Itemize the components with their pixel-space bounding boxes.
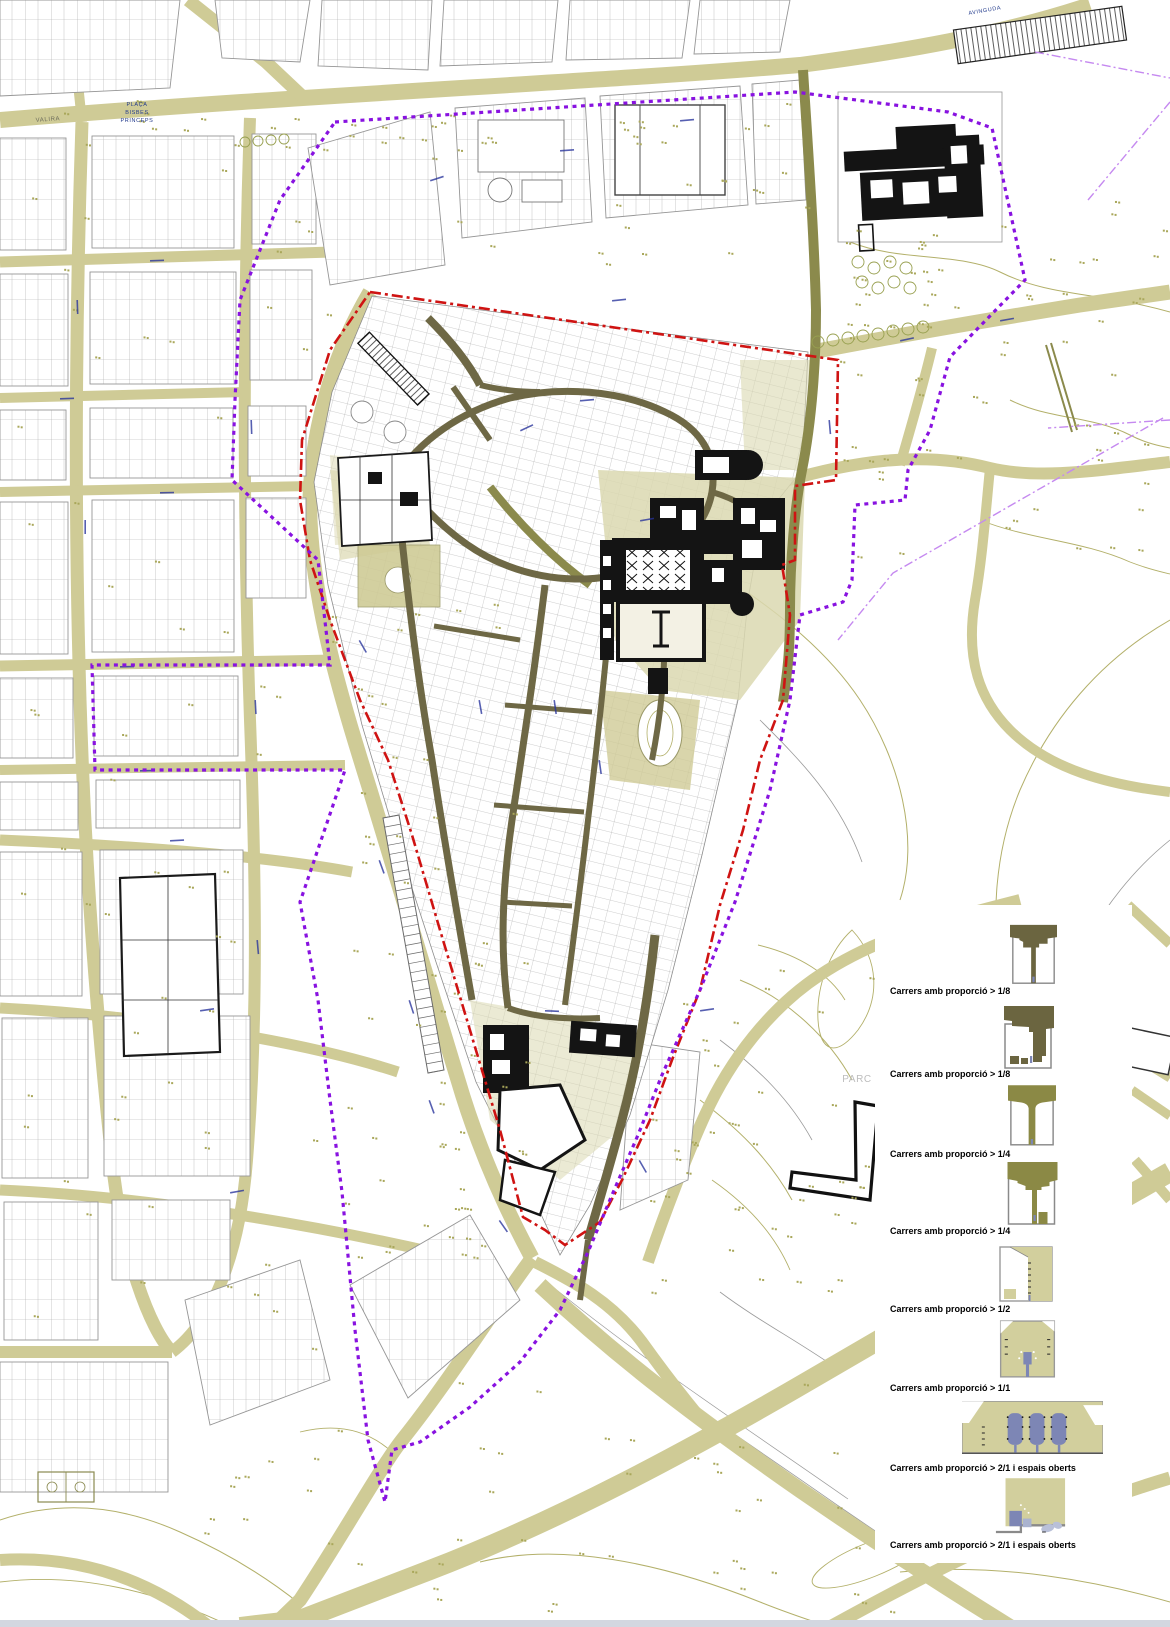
street-section-icon	[962, 1401, 1103, 1461]
street-section-icon	[992, 1241, 1060, 1303]
legend-item-label: Carrers amb proporció > 1/8	[890, 1069, 1010, 1079]
svg-text:AVINGUDA: AVINGUDA	[968, 5, 1002, 17]
svg-text:PARC: PARC	[842, 1074, 871, 1085]
street-section-icon	[993, 1319, 1062, 1381]
legend-item-label: Carrers amb proporció > 1/2	[890, 1304, 1010, 1314]
legend-panel: Carrers amb proporció > 1/8 Carrers amb …	[875, 905, 1132, 1563]
legend-item-label: Carrers amb proporció > 2/1 i espais obe…	[890, 1463, 1076, 1473]
street-section-icon	[1002, 1006, 1054, 1070]
legend-item-label: Carrers amb proporció > 2/1 i espais obe…	[890, 1540, 1076, 1550]
sheet-footer-strip	[0, 1620, 1170, 1627]
street-section-icon	[994, 1477, 1067, 1539]
street-section-icon	[1010, 923, 1057, 987]
palace-east	[733, 498, 785, 570]
legend-item-label: Carrers amb proporció > 1/4	[890, 1149, 1010, 1159]
tree-plaza	[358, 545, 440, 607]
chapel-north	[695, 450, 763, 480]
legend-item-label: Carrers amb proporció > 1/4	[890, 1226, 1010, 1236]
legend-item-label: Carrers amb proporció > 1/8	[890, 986, 1010, 996]
urban-plan-sheet: PLAÇABISBESPRINCEPSVALIRAAVINGUDAPARC	[0, 0, 1170, 1627]
southeast-l-building	[790, 1102, 878, 1200]
legend-item-label: Carrers amb proporció > 1/1	[890, 1383, 1010, 1393]
street-section-icon	[1008, 1084, 1056, 1148]
street-section-icon	[1003, 1162, 1060, 1226]
